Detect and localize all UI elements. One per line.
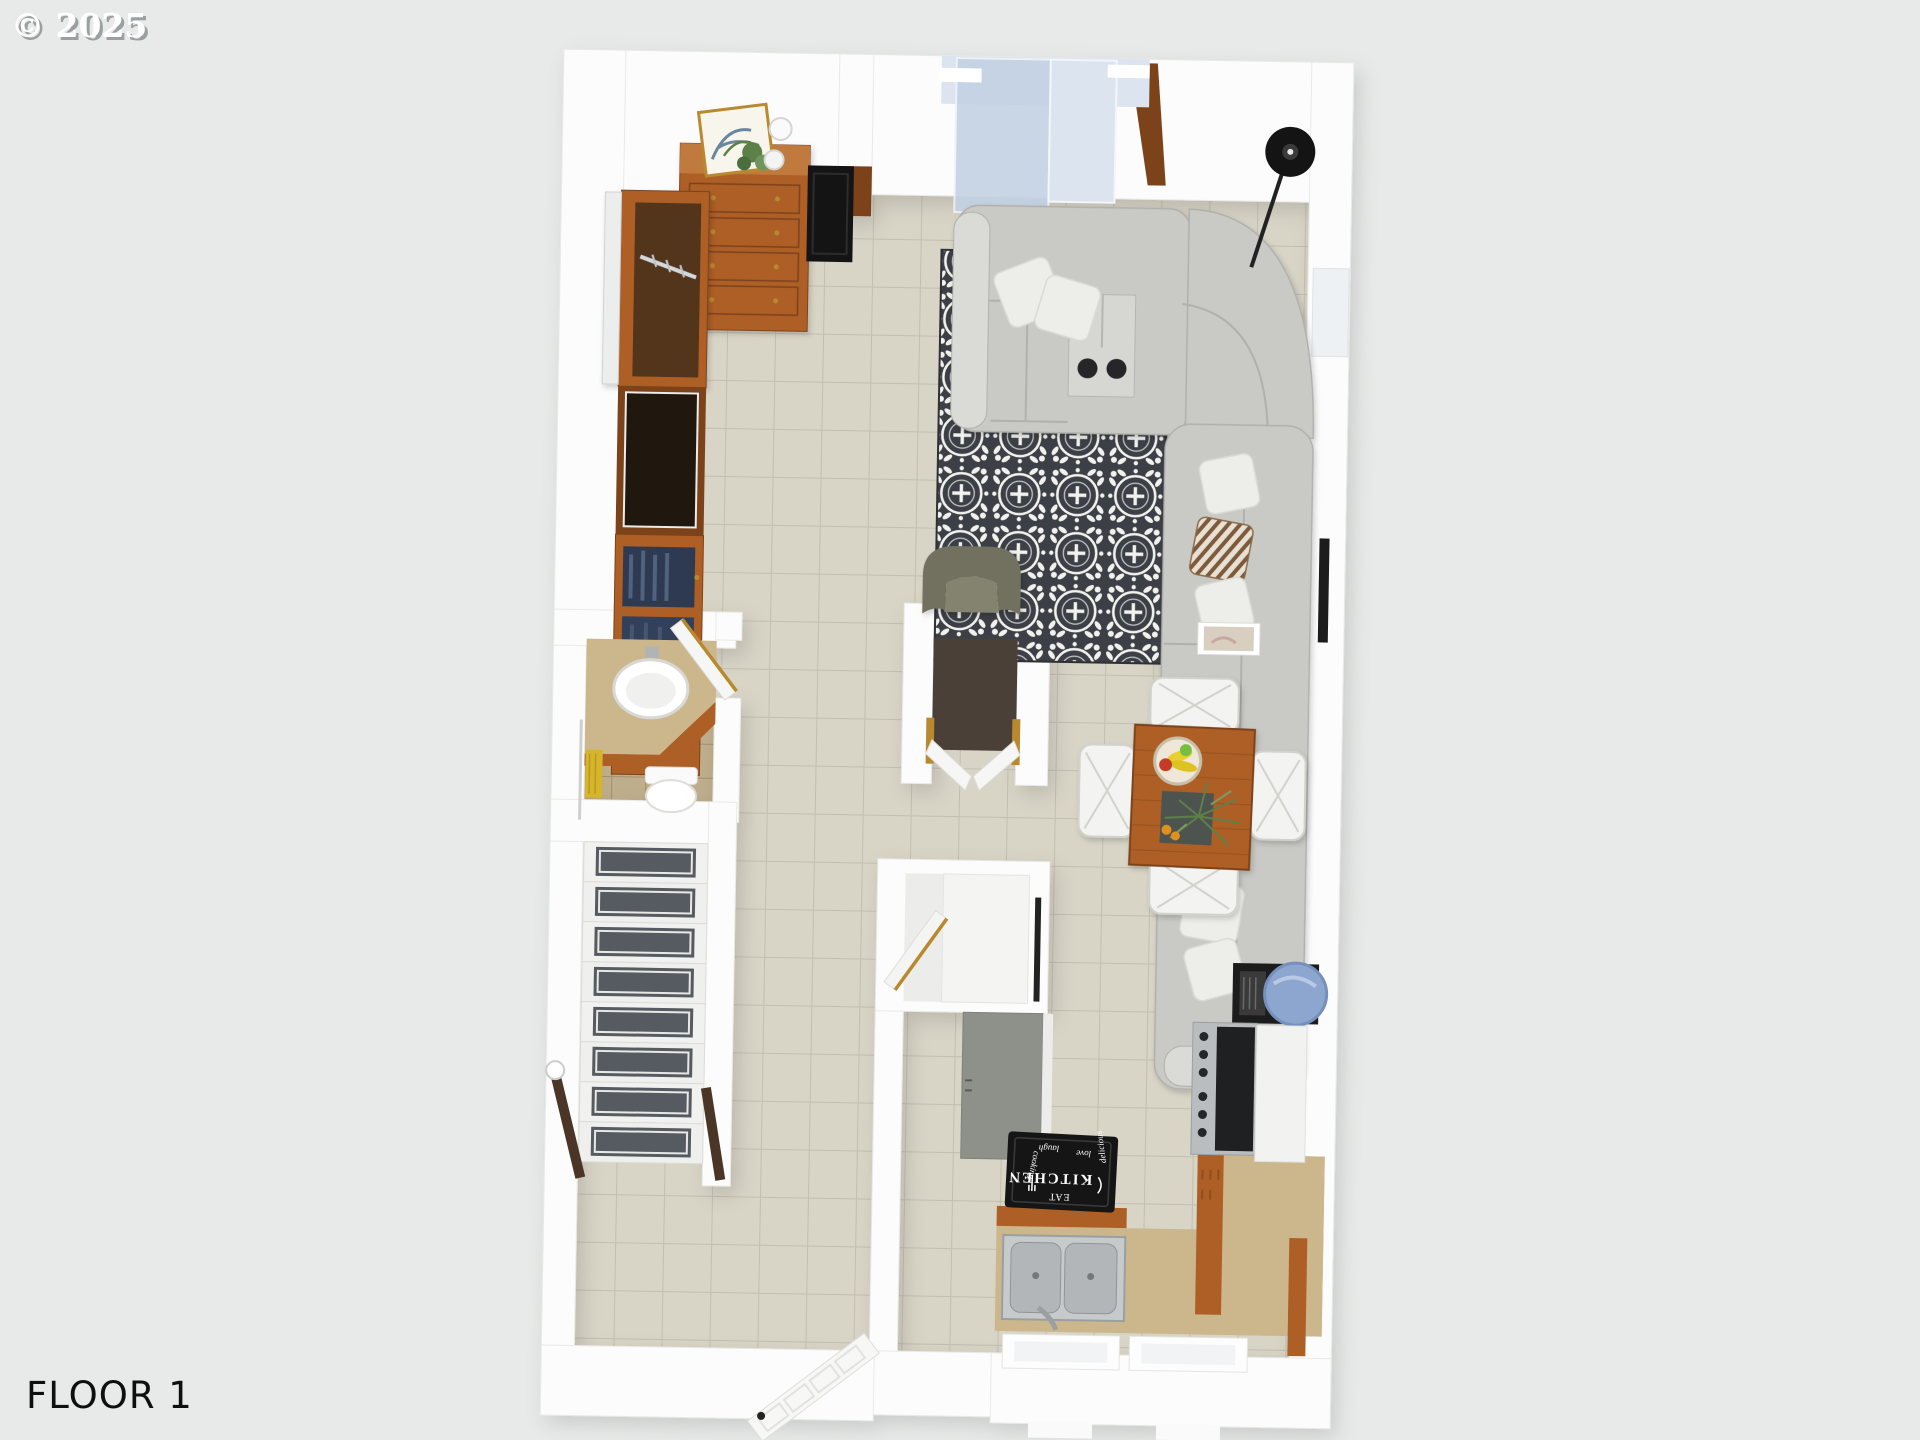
sofa-arm-left — [950, 212, 990, 429]
toilet — [645, 767, 698, 813]
armoire-wardrobe — [602, 190, 709, 388]
armoire-open-door — [602, 192, 621, 384]
kitchen-window-glass — [1014, 1341, 1107, 1363]
newel-post — [546, 1061, 564, 1079]
right-wall-window — [1312, 268, 1350, 357]
kitchen-mat: KITCHEN EAT cooking delicious love laugh — [1004, 1126, 1118, 1212]
towel-rod — [580, 720, 582, 820]
dishwasher-panel — [1255, 1025, 1307, 1162]
closet-interior — [932, 638, 1018, 751]
tv-cabinet — [616, 386, 707, 536]
floor-label: FLOOR 1 — [26, 1374, 193, 1417]
accent-armchair — [922, 546, 1021, 616]
window-sill — [1028, 1421, 1092, 1438]
bathroom-door-jamb-wall — [716, 612, 742, 640]
half-wall-picture — [1198, 622, 1261, 655]
boho-striped-pillow — [1188, 516, 1254, 584]
dining-chair-east — [1250, 751, 1306, 840]
entry-hall-wall — [869, 1007, 903, 1351]
mat-word-kitchen: KITCHEN — [1007, 1168, 1092, 1187]
vase — [769, 118, 791, 140]
vase — [764, 150, 783, 169]
toilet-bowl — [646, 780, 697, 813]
mat-word-love: love — [1076, 1149, 1091, 1160]
fruit-bowl — [1154, 738, 1201, 785]
cabinet-end-panel — [1287, 1238, 1307, 1356]
glass-panel-right — [1048, 60, 1116, 203]
stair-treads — [579, 842, 709, 1164]
entry-closet-top — [941, 874, 1029, 1003]
yellow-towel — [585, 750, 603, 798]
range-stove — [1191, 1022, 1257, 1155]
speaker — [806, 165, 854, 262]
watermark: © 2025 — [11, 6, 147, 45]
dining-chair-west — [1078, 744, 1136, 837]
mat-word-laugh: laugh — [1038, 1143, 1059, 1154]
wall-art-frame — [1318, 538, 1330, 642]
house-plan: KITCHEN EAT cooking delicious love laugh — [540, 49, 1354, 1440]
flat-tv — [624, 392, 698, 527]
armchair-seat — [944, 576, 999, 613]
blue-bowl — [1264, 963, 1327, 1026]
slider-frame-left — [939, 68, 981, 83]
kitchen-window-glass — [1141, 1343, 1235, 1365]
window-sill — [1156, 1424, 1220, 1440]
floorplan-render: KITCHEN EAT cooking delicious love laugh — [0, 0, 1920, 1440]
slider-frame-right — [1108, 65, 1150, 79]
mat-word-eat: EAT — [1048, 1191, 1070, 1203]
front-door-threshold — [873, 1351, 991, 1417]
bathroom-bottom-wall — [550, 799, 733, 844]
kitchen-sink — [1002, 1235, 1126, 1331]
floorplan-page: KITCHEN EAT cooking delicious love laugh — [0, 0, 1920, 1440]
dining-chair-north — [1150, 678, 1239, 734]
throw-pillow — [1198, 452, 1261, 515]
sink-faucet — [645, 647, 658, 658]
